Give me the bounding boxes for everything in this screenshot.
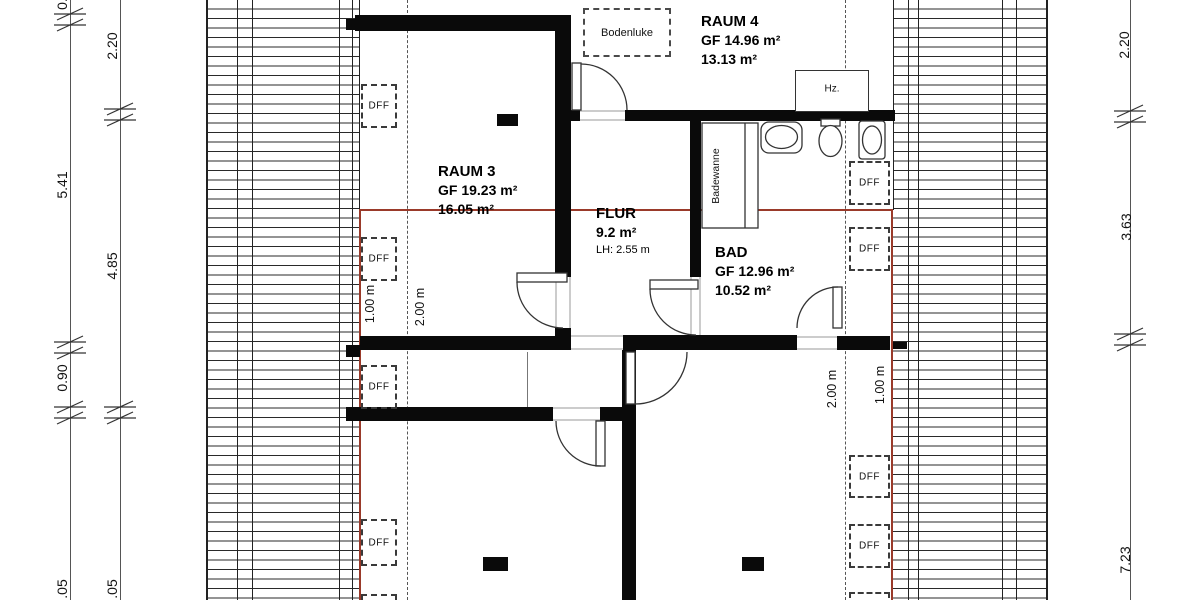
tick	[54, 8, 86, 31]
toilet	[819, 119, 842, 157]
tick	[104, 103, 136, 126]
door-room-southeast	[797, 287, 842, 328]
dim-right-0: 2.20	[1116, 31, 1132, 58]
attic-hatch-box: Bodenluke	[583, 8, 671, 57]
door-room-southwest	[556, 421, 605, 466]
headroom-label-right-200: 2.00 m	[825, 370, 839, 408]
dff-roof-window: DFF	[849, 592, 890, 600]
dim-right-2: 7.23	[1117, 546, 1133, 573]
dff-roof-window: DFF	[849, 455, 890, 498]
headroom-label-right-100: 1.00 m	[873, 366, 887, 404]
heater-box: Hz.	[795, 70, 869, 112]
plan-overlay	[0, 0, 1200, 600]
room-area: GF 12.96 m²	[715, 262, 794, 281]
tick	[54, 401, 86, 424]
room-area2: 10.52 m²	[715, 281, 794, 300]
dff-roof-window: DFF	[361, 84, 397, 128]
heater-label: Hz.	[825, 84, 840, 95]
room-label-raum4: RAUM 4 GF 14.96 m² 13.13 m²	[701, 12, 780, 69]
dff-roof-window: DFF	[361, 237, 397, 281]
tick	[104, 401, 136, 424]
dff-roof-window: DFF	[361, 365, 397, 409]
room-area: GF 19.23 m²	[438, 181, 517, 200]
dff-label: DFF	[859, 541, 880, 552]
room-name: FLUR	[596, 204, 650, 223]
tick	[54, 336, 86, 359]
dim-left-inner-1: 4.85	[104, 252, 120, 279]
dff-label: DFF	[369, 101, 390, 112]
door-flur-south	[626, 352, 687, 404]
room-height: LH: 2.55 m	[596, 242, 650, 258]
washbasin-small	[859, 121, 885, 159]
dff-roof-window: DFF	[849, 227, 890, 271]
door-openings	[553, 111, 837, 420]
washbasin-large	[761, 122, 802, 153]
dim-left-outer-1: 5.41	[54, 171, 70, 198]
dim-left-outer-3: .05	[54, 579, 70, 598]
room-name: BAD	[715, 243, 794, 262]
dff-label: DFF	[369, 537, 390, 548]
bathtub-label: Badewanne	[710, 148, 722, 203]
headroom-label-left-200: 2.00 m	[413, 288, 427, 326]
dff-label: DFF	[859, 471, 880, 482]
headroom-label-left-100: 1.00 m	[363, 285, 377, 323]
room-label-raum3: RAUM 3 GF 19.23 m² 16.05 m²	[438, 162, 517, 219]
dff-roof-window: DFF	[361, 594, 397, 600]
floor-plan-canvas: Hz. Bodenluke DFF DFF DFF DFF DFF DFF DF…	[0, 0, 1200, 600]
room-area2: 13.13 m²	[701, 50, 780, 69]
room-name: RAUM 4	[701, 12, 780, 31]
dim-left-outer-0: 0.	[54, 0, 70, 10]
dff-roof-window: DFF	[849, 524, 890, 568]
tick	[1114, 105, 1146, 128]
room-area: GF 14.96 m²	[701, 31, 780, 50]
room-name: RAUM 3	[438, 162, 517, 181]
dff-label: DFF	[369, 382, 390, 393]
dff-label: DFF	[859, 244, 880, 255]
dim-right-1: 3.63	[1118, 213, 1134, 240]
dff-roof-window: DFF	[849, 161, 890, 205]
tick	[1114, 328, 1146, 351]
dff-roof-window: DFF	[361, 519, 397, 566]
door-raum3	[517, 273, 567, 328]
dim-left-inner-0: 2.20	[104, 32, 120, 59]
room-area: 9.2 m²	[596, 223, 650, 242]
dim-left-inner-2: .05	[104, 579, 120, 598]
room-label-bad: BAD GF 12.96 m² 10.52 m²	[715, 243, 794, 300]
dff-label: DFF	[369, 254, 390, 265]
door-attic-vestibule	[572, 63, 627, 110]
room-area2: 16.05 m²	[438, 200, 517, 219]
attic-hatch-label: Bodenluke	[601, 27, 653, 39]
dim-left-outer-2: 0.90	[54, 364, 70, 391]
dff-label: DFF	[859, 178, 880, 189]
room-label-flur: FLUR 9.2 m² LH: 2.55 m	[596, 204, 650, 258]
